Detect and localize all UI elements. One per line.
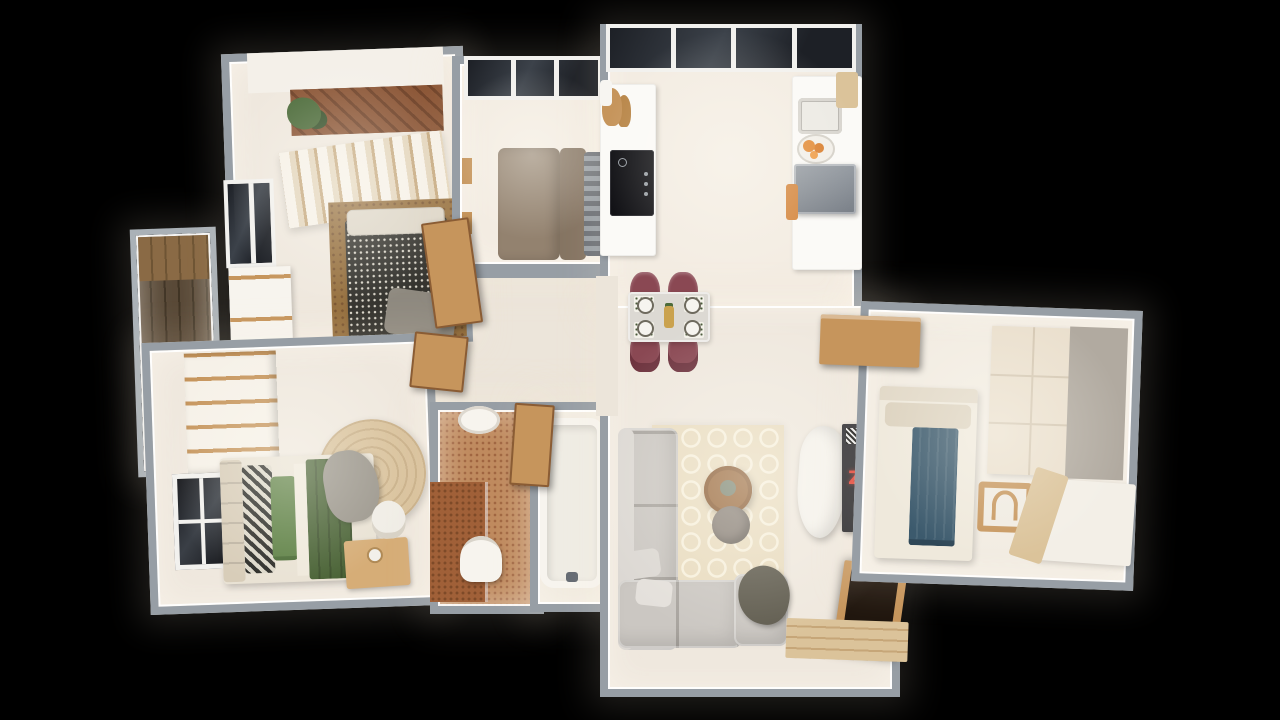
window-mullion [554, 60, 559, 96]
bed-pillow [885, 402, 972, 429]
vanity-desk [344, 537, 411, 589]
cooktop [610, 150, 654, 216]
toilet [460, 536, 502, 582]
pouf [712, 506, 750, 544]
entry-wood-mat [785, 618, 908, 662]
window-mullion [731, 28, 736, 68]
wall-hook [462, 158, 472, 184]
oranges [803, 140, 815, 152]
wall-shelf [836, 72, 858, 108]
vanity-chair [371, 500, 406, 539]
kitchen-window-band [606, 24, 856, 72]
cooktop-burner [644, 172, 648, 176]
wardrobe-side-panel [1065, 326, 1128, 480]
small-bedroom-window [464, 56, 602, 100]
cooktop-burner [644, 182, 648, 186]
apartment-floorplan-render: Z [0, 0, 1280, 720]
room-kitchen [600, 24, 862, 314]
table-centerpiece [664, 306, 674, 328]
beige-wardrobe [987, 326, 1076, 477]
window-mullion [792, 28, 797, 68]
sofa-pillow [635, 578, 674, 608]
bath-faucet [566, 572, 578, 582]
plate [637, 320, 654, 337]
gray-appliance [794, 164, 856, 214]
orange-cloth [786, 184, 798, 220]
balcony-left-light-deck [138, 235, 209, 281]
taupe-daybed-cushion-2 [560, 148, 586, 260]
window-mullion [671, 28, 676, 68]
plate [684, 320, 701, 337]
chair-arch [991, 490, 1018, 521]
open-door-master [409, 331, 469, 392]
sofa-pillow [620, 547, 662, 580]
room-master-bedroom [141, 333, 442, 615]
taupe-daybed-cushion [498, 148, 560, 260]
fruit-bowl [797, 134, 835, 164]
dining-table [628, 292, 710, 342]
basin [458, 406, 500, 434]
cooktop-burner [618, 158, 627, 167]
room-small-bedroom [452, 56, 612, 278]
master-striped-closet [184, 350, 280, 473]
window-mullion [511, 60, 516, 96]
bedroom2-left-window [223, 179, 276, 269]
cooktop-burner [644, 192, 648, 196]
paper-towel [600, 80, 612, 106]
table-plant [720, 480, 736, 496]
plate [684, 297, 701, 314]
window-mullion [248, 183, 256, 263]
blue-throw [908, 427, 958, 547]
hall-opening [596, 276, 618, 416]
plate [637, 297, 654, 314]
open-door-bathroom [509, 403, 555, 488]
wood-sideboard [819, 314, 921, 367]
